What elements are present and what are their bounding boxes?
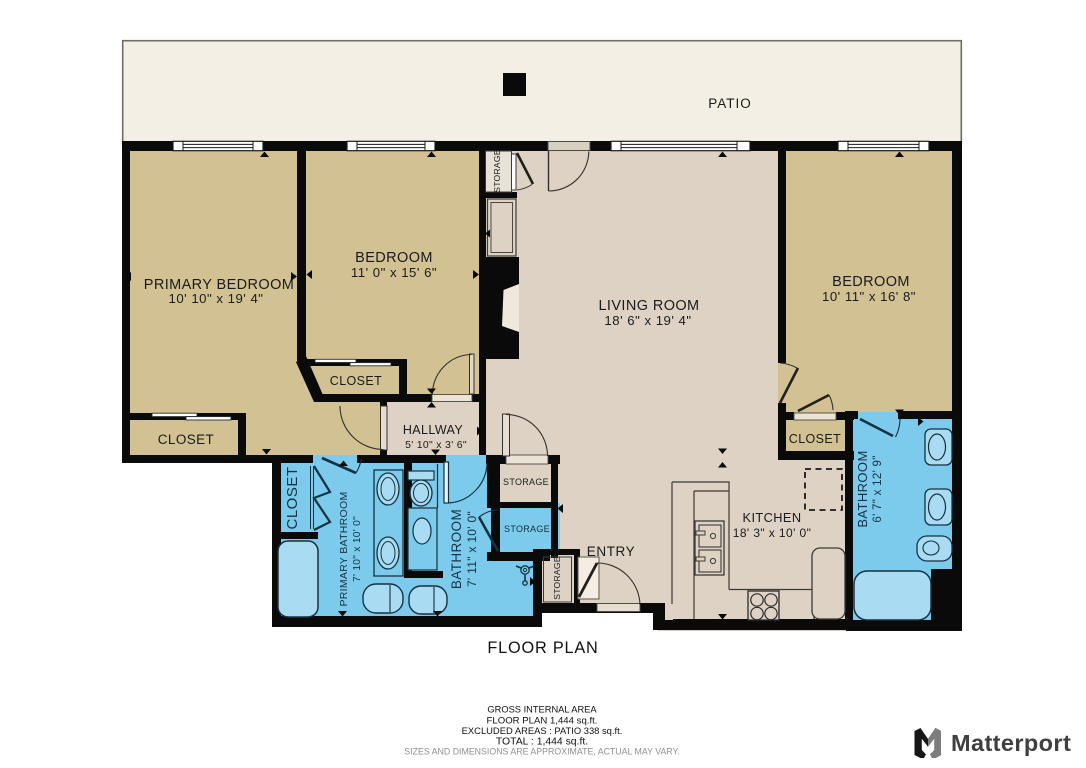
svg-text:EXCLUDED AREAS : PATIO 338 sq: EXCLUDED AREAS : PATIO 338 sq.ft.	[462, 725, 623, 736]
svg-text:7' 10" x 10' 0": 7' 10" x 10' 0"	[352, 516, 363, 582]
svg-text:FLOOR PLAN: FLOOR PLAN	[487, 639, 598, 657]
svg-text:PRIMARY BATHROOM: PRIMARY BATHROOM	[338, 491, 350, 606]
svg-text:6' 7" x 12' 9": 6' 7" x 12' 9"	[872, 455, 884, 522]
svg-text:STORAGE: STORAGE	[552, 556, 562, 600]
svg-text:CLOSET: CLOSET	[158, 432, 214, 447]
svg-text:KITCHEN: KITCHEN	[743, 510, 802, 525]
svg-text:BATHROOM: BATHROOM	[855, 450, 870, 527]
svg-text:18' 3" x 10' 0": 18' 3" x 10' 0"	[733, 526, 811, 540]
svg-text:CLOSET: CLOSET	[789, 432, 841, 446]
svg-text:5' 10" x 3' 6": 5' 10" x 3' 6"	[405, 439, 467, 451]
svg-text:CLOSET: CLOSET	[284, 466, 301, 529]
svg-text:PATIO: PATIO	[708, 96, 752, 111]
svg-text:HALLWAY: HALLWAY	[403, 423, 463, 437]
svg-text:10' 10" x 19' 4": 10' 10" x 19' 4"	[169, 291, 264, 306]
svg-text:LIVING ROOM: LIVING ROOM	[598, 298, 699, 314]
svg-text:ENTRY: ENTRY	[587, 544, 636, 559]
svg-text:11' 0" x 15' 6": 11' 0" x 15' 6"	[351, 265, 437, 280]
svg-text:CLOSET: CLOSET	[330, 374, 382, 388]
svg-text:10' 11" x 16' 8": 10' 11" x 16' 8"	[822, 289, 916, 304]
svg-text:SIZES AND DIMENSIONS ARE APPRO: SIZES AND DIMENSIONS ARE APPROXIMATE, AC…	[404, 747, 679, 757]
svg-text:GROSS INTERNAL AREA: GROSS INTERNAL AREA	[487, 705, 597, 715]
svg-text:BATHROOM: BATHROOM	[449, 509, 464, 589]
svg-text:7' 11" x 10' 0": 7' 11" x 10' 0"	[465, 511, 479, 587]
svg-text:18' 6" x 19' 4": 18' 6" x 19' 4"	[604, 313, 691, 328]
svg-text:BEDROOM: BEDROOM	[832, 274, 910, 290]
svg-text:STORAGE: STORAGE	[504, 524, 550, 534]
svg-text:Matterport: Matterport	[951, 730, 1071, 756]
svg-text:STORAGE: STORAGE	[492, 149, 502, 193]
svg-text:BEDROOM: BEDROOM	[355, 250, 433, 266]
svg-text:STORAGE: STORAGE	[503, 477, 549, 487]
